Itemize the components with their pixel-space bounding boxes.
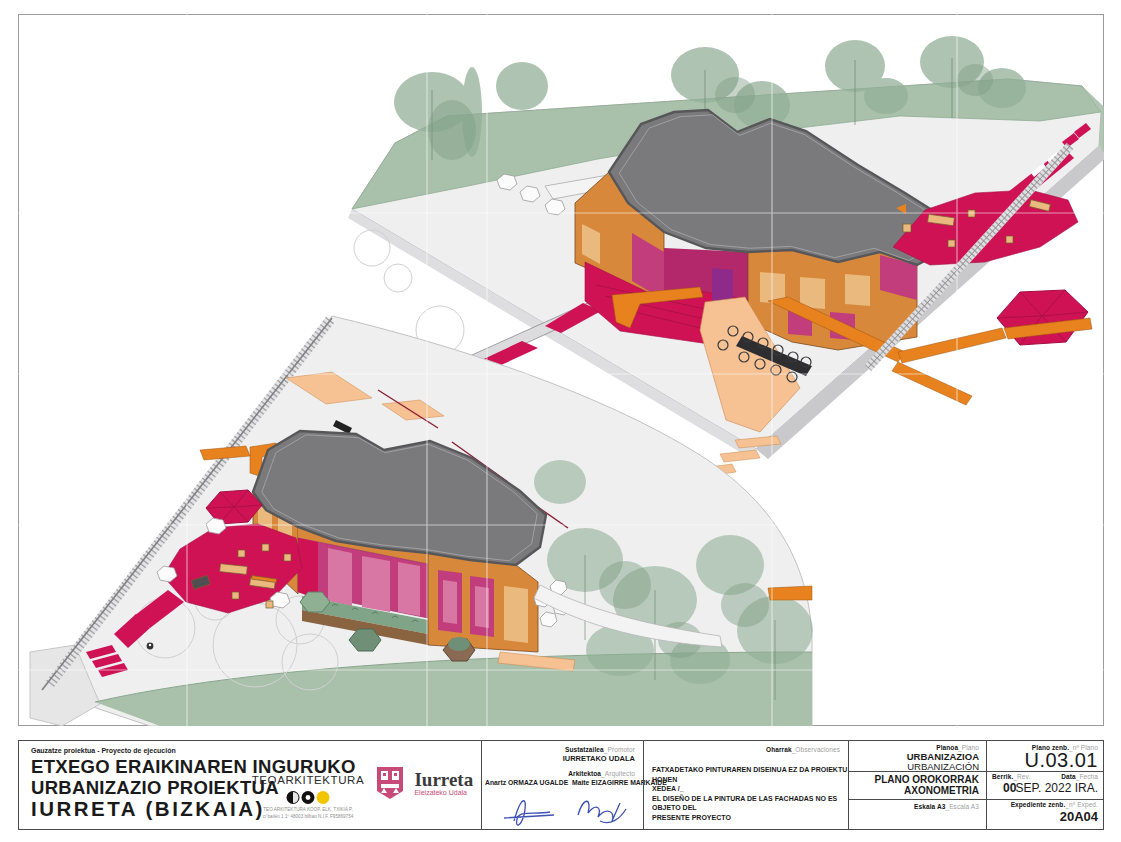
iurreta-crest-icon bbox=[375, 765, 405, 801]
signature-1 bbox=[500, 785, 558, 827]
revision-label: Berrik._Rev. bbox=[992, 773, 1030, 780]
revision-value: 00 bbox=[1003, 781, 1016, 795]
promotor-cell: Sustatzailea_Promotor IURRETAKO UDALA Ar… bbox=[481, 741, 643, 829]
titleblock-divider-2 bbox=[848, 799, 1104, 800]
project-cell: Gauzatze proiektua - Proyecto de ejecuci… bbox=[19, 741, 481, 829]
promotor-label: Sustatzailea_Promotor bbox=[565, 746, 635, 753]
plan-sheet: Gauzatze proiektua - Proyecto de ejecuci… bbox=[0, 0, 1121, 842]
plan-number: U.03.01 bbox=[1024, 749, 1098, 772]
remarks-cell: Oharrak_Observaciones FATXADETAKO PINTUR… bbox=[643, 741, 848, 829]
plan-name-cell: Planoa_Plano URBANIZAZIOA URBANIZACIÓN P… bbox=[848, 741, 986, 829]
expediente-value: 20A04 bbox=[1060, 809, 1098, 824]
date-value: SEP. 2022 IRA. bbox=[1016, 781, 1099, 795]
plan-subtitle-1: PLANO OROKORRAK bbox=[875, 774, 979, 785]
expediente-label: Expediente zenb._nº Exped. bbox=[1011, 801, 1098, 808]
iurreta-logo: Iurreta Eleizateko Udala bbox=[375, 765, 475, 801]
axonometric-drawing bbox=[18, 14, 1104, 726]
plan-label: Planoa_Plano bbox=[936, 744, 979, 751]
promotor-value: IURRETAKO UDALA bbox=[563, 754, 635, 763]
remarks-text: FATXADETAKO PINTURAREN DISEINUA EZ DA PR… bbox=[652, 765, 848, 822]
numbering-cell: Plano zenb._nº Plano U.03.01 Berrik._Rev… bbox=[986, 741, 1104, 829]
project-kicker: Gauzatze proiektua - Proyecto de ejecuci… bbox=[31, 747, 176, 754]
title-block: Gauzatze proiektua - Proyecto de ejecuci… bbox=[18, 740, 1104, 830]
teo-logo: TEOARKITEKTURA TEO ARKITEKTURA KOOP. ELK… bbox=[232, 770, 384, 820]
remarks-label: Oharrak_Observaciones bbox=[766, 746, 840, 753]
date-label: Data_Fecha bbox=[1061, 773, 1098, 780]
teo-logo-circles-icon bbox=[285, 790, 331, 805]
signature-2 bbox=[570, 785, 632, 827]
plan-subtitle-2: AXONOMETRIA bbox=[904, 785, 979, 796]
architect-label: Arkitektoa_Arquitecto bbox=[568, 770, 635, 777]
scale-label: Eskala A3_Escala A3 bbox=[914, 803, 979, 810]
titleblock-divider-1 bbox=[848, 771, 1104, 772]
